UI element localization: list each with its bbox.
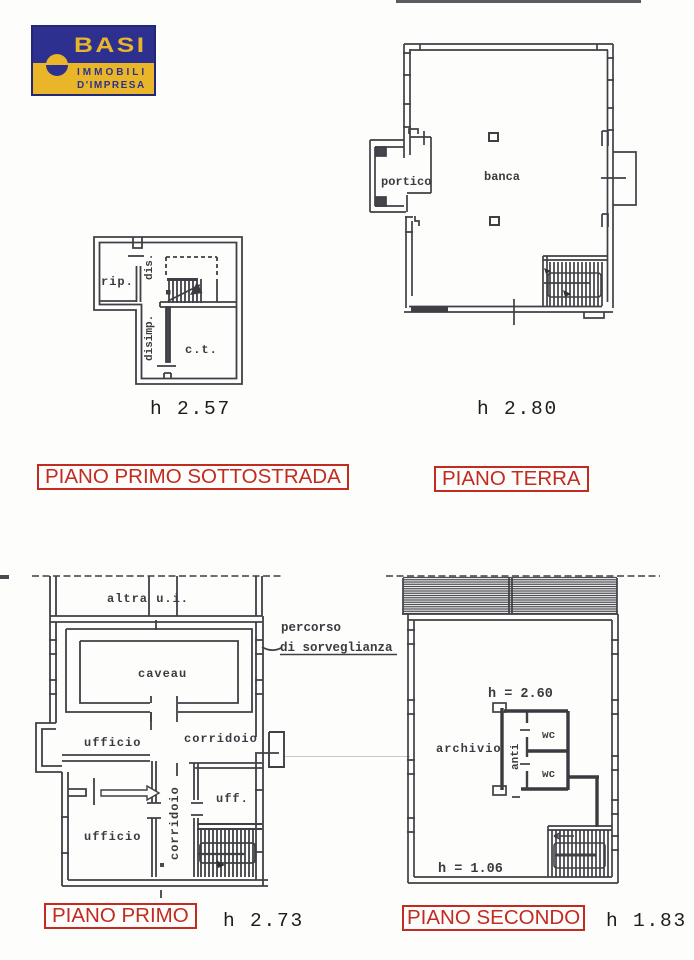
svg-text:ufficio: ufficio (84, 830, 141, 844)
svg-text:c.t.: c.t. (185, 343, 218, 357)
svg-text:uff.: uff. (216, 792, 249, 806)
svg-text:banca: banca (484, 170, 520, 184)
svg-text:h = 1.06: h = 1.06 (438, 862, 503, 877)
svg-text:ufficio: ufficio (84, 736, 141, 750)
svg-text:rip.: rip. (101, 275, 134, 289)
svg-text:caveau: caveau (138, 667, 187, 681)
svg-text:h = 2.60: h = 2.60 (488, 687, 553, 702)
svg-text:anti: anti (510, 743, 522, 770)
svg-text:percorso: percorso (281, 621, 341, 635)
svg-text:corridoio: corridoio (184, 732, 258, 746)
svg-text:portico: portico (381, 175, 431, 189)
svg-text:wc: wc (542, 769, 555, 781)
svg-text:altra u.i.: altra u.i. (107, 592, 189, 606)
svg-text:wc: wc (542, 730, 555, 742)
svg-text:di sorveglianza: di sorveglianza (280, 641, 393, 655)
svg-text:archivio: archivio (436, 742, 502, 756)
svg-text:corridoio: corridoio (168, 786, 182, 860)
svg-text:dis.: dis. (144, 254, 156, 280)
svg-text:disimp.: disimp. (144, 315, 156, 361)
